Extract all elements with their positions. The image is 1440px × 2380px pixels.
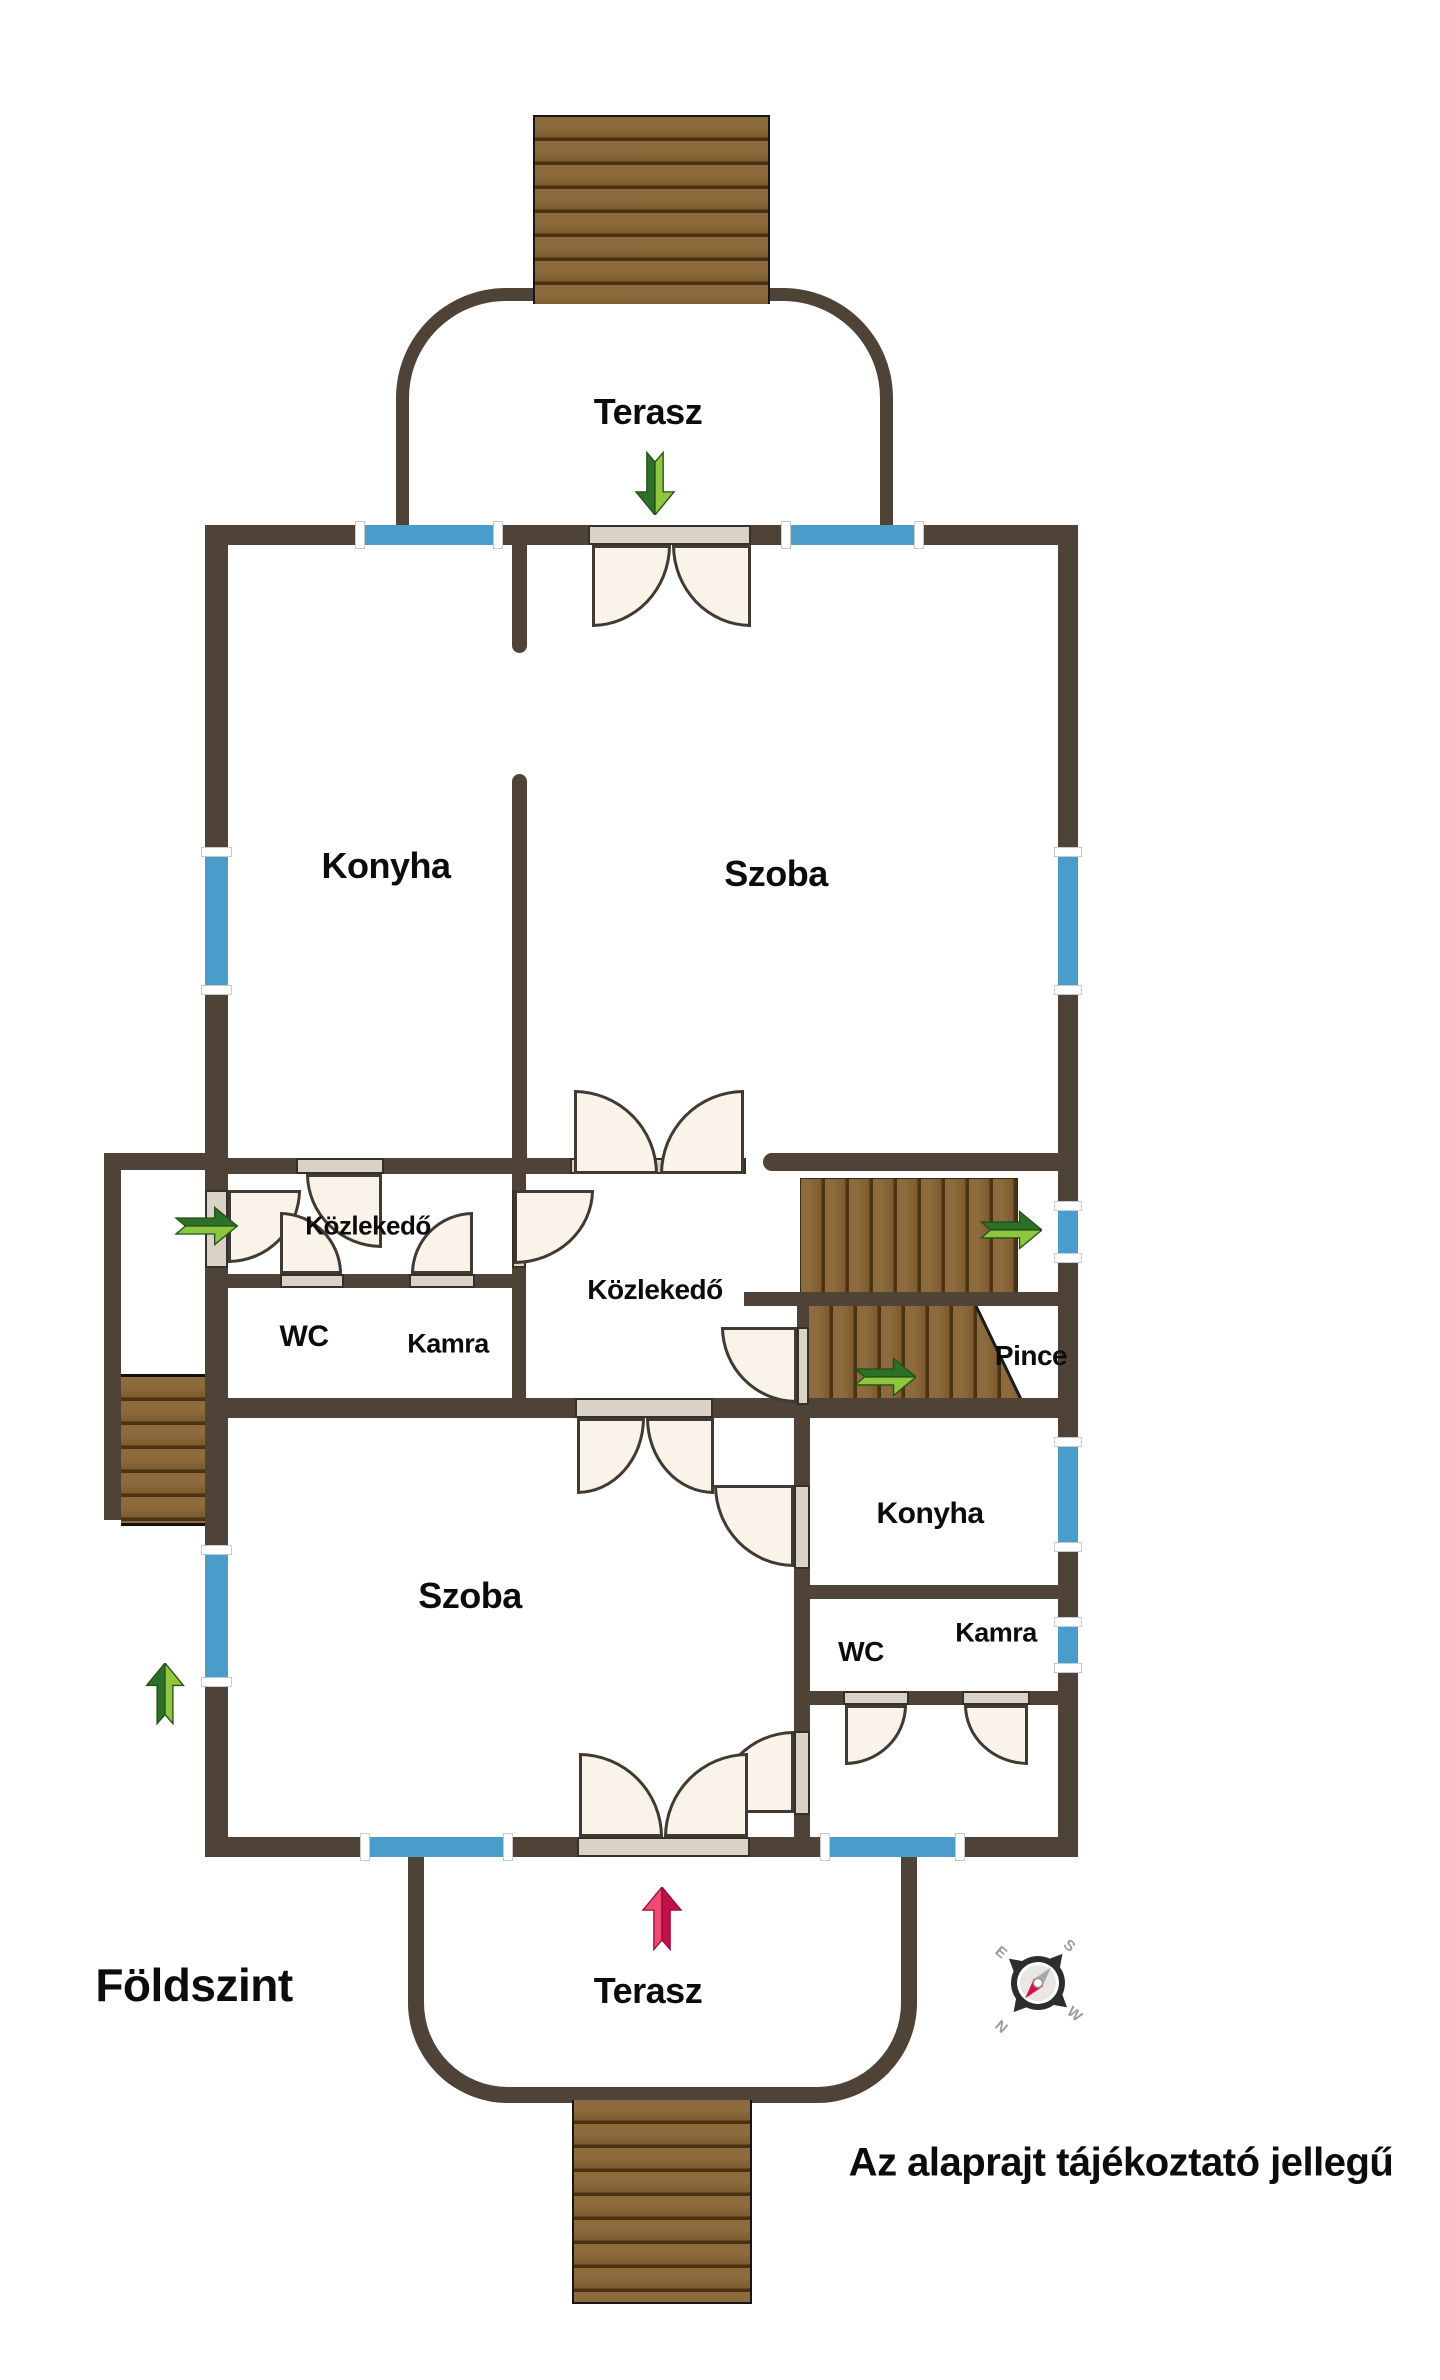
deck-top: [533, 115, 770, 304]
compass-rose: S N E W: [973, 1913, 1103, 2053]
window-bottom-left: [365, 1837, 508, 1857]
compass-label-n: N: [991, 2017, 1010, 2037]
door-leaf: [714, 1485, 794, 1567]
door-leaf: [964, 1705, 1028, 1765]
window-right-kamra: [1058, 1622, 1078, 1668]
door-threshold-wc-lower: [843, 1691, 909, 1705]
entrance-arrow-porch-door: [170, 1206, 238, 1246]
door-leaf: [574, 1090, 658, 1174]
door-leaf: [664, 1753, 748, 1837]
door-threshold-anteroom: [794, 1731, 810, 1815]
porch-steps: [121, 1374, 205, 1526]
room-label-terasz-top: Terasz: [594, 391, 702, 433]
window-left-lower: [205, 1550, 228, 1682]
door-leaf: [646, 1418, 714, 1494]
door-threshold-konyha-lower: [794, 1485, 810, 1569]
door-leaf: [721, 1327, 797, 1403]
door-threshold-kamra-lower: [962, 1691, 1030, 1705]
compass-label-w: W: [1064, 2003, 1086, 2026]
divider-wall-upper-a: [512, 545, 527, 653]
door-leaf: [660, 1090, 744, 1174]
room-label-szoba-upper: Szoba: [724, 853, 828, 895]
room-label-terasz-bottom: Terasz: [594, 1970, 702, 2012]
door-threshold-kamra-upper: [409, 1274, 475, 1288]
compass-label-e: E: [992, 1943, 1011, 1962]
entrance-arrow-terrace-top: [634, 447, 676, 515]
door-leaf: [514, 1190, 594, 1264]
room-label-kozlekedo-main: Közlekedő: [587, 1274, 723, 1306]
door-threshold-szoba-lower: [575, 1398, 713, 1418]
door-leaf: [592, 545, 671, 627]
door-leaf: [845, 1705, 907, 1765]
room-label-wc-lower: WC: [838, 1636, 884, 1668]
room-label-wc-upper: WC: [280, 1320, 329, 1354]
entrance-arrow-porch-steps: [145, 1663, 185, 1729]
door-threshold-terrace-bottom: [577, 1837, 750, 1857]
room-label-szoba-lower: Szoba: [418, 1575, 522, 1617]
room-label-pince: Pince: [995, 1340, 1067, 1372]
hall-top-wall-right: [763, 1153, 1058, 1171]
divider-wall-upper-b: [512, 774, 527, 1174]
door-leaf: [672, 545, 751, 627]
door-leaf: [577, 1418, 645, 1494]
window-right-upper: [1058, 852, 1078, 990]
stairs-divider-wall: [744, 1292, 1078, 1306]
stairs-up-arrow: [976, 1210, 1042, 1250]
room-label-konyha-upper: Konyha: [321, 845, 450, 887]
door-threshold-terrace-top: [588, 525, 751, 545]
floor-title: Földszint: [95, 1958, 292, 2012]
window-top-right: [786, 525, 919, 545]
deck-bottom: [572, 2100, 752, 2304]
door-threshold-konyha-hall: [296, 1158, 384, 1174]
stairs-down-arrow-pince: [850, 1357, 916, 1397]
door-threshold-stairs: [797, 1327, 809, 1405]
compass-label-s: S: [1060, 1936, 1079, 1955]
entrance-arrow-terrace-bottom: [641, 1887, 683, 1955]
room-label-kamra-upper: Kamra: [407, 1329, 489, 1360]
room-label-konyha-lower: Konyha: [876, 1497, 983, 1531]
floor-plan: S N E W Terasz Konyha Szoba Közlekedő WC…: [0, 0, 1440, 2380]
room-label-kozlekedo-upper: Közlekedő: [305, 1211, 431, 1242]
disclaimer-text: Az alaprajt tájékoztató jellegű: [849, 2141, 1394, 2186]
konyha-lower-bottom-wall: [794, 1585, 1058, 1599]
window-left-upper: [205, 852, 228, 990]
window-right-stairs: [1058, 1206, 1078, 1258]
room-label-kamra-lower: Kamra: [955, 1618, 1037, 1649]
window-top-left: [360, 525, 498, 545]
door-leaf: [579, 1753, 663, 1837]
door-threshold-wc-upper: [280, 1274, 344, 1288]
porch-left-wall: [104, 1153, 121, 1520]
window-right-konyha: [1058, 1442, 1078, 1547]
window-bottom-right: [825, 1837, 960, 1857]
